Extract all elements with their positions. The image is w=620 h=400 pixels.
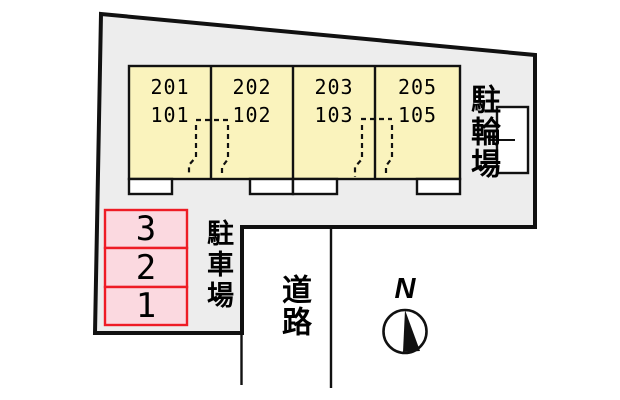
unit-label-203-103: 203 103 (293, 73, 375, 133)
parking-stall-number: 1 (105, 287, 187, 325)
unit-label-202-102: 202 102 (211, 73, 293, 133)
unit-lower-number: 103 (293, 101, 375, 129)
entrance-porch (129, 179, 172, 194)
parking-stall-number: 2 (105, 248, 187, 287)
compass-needle-icon (403, 310, 420, 352)
entrance-porch (250, 179, 293, 194)
parking-stall-number: 3 (105, 210, 187, 248)
entrance-porch (293, 179, 337, 194)
unit-upper-number: 201 (129, 73, 211, 101)
unit-lower-number: 102 (211, 101, 293, 129)
unit-label-205-105: 205 105 (375, 73, 460, 133)
unit-upper-number: 203 (293, 73, 375, 101)
car-parking-label: 駐車場 (199, 219, 238, 312)
bicycle-parking-label: 駐輪場 (460, 84, 504, 180)
unit-lower-number: 105 (375, 101, 460, 129)
unit-lower-number: 101 (129, 101, 211, 129)
unit-label-201-101: 201 101 (129, 73, 211, 133)
road-label: 道路 (271, 274, 315, 338)
unit-upper-number: 202 (211, 73, 293, 101)
site-plan: 201 101 202 102 203 103 205 105 駐輪場 駐車場 … (0, 0, 620, 400)
unit-upper-number: 205 (375, 73, 460, 101)
compass-north-label: N (383, 273, 427, 306)
entrance-porch (417, 179, 460, 194)
site-plan-drawing (0, 0, 620, 400)
